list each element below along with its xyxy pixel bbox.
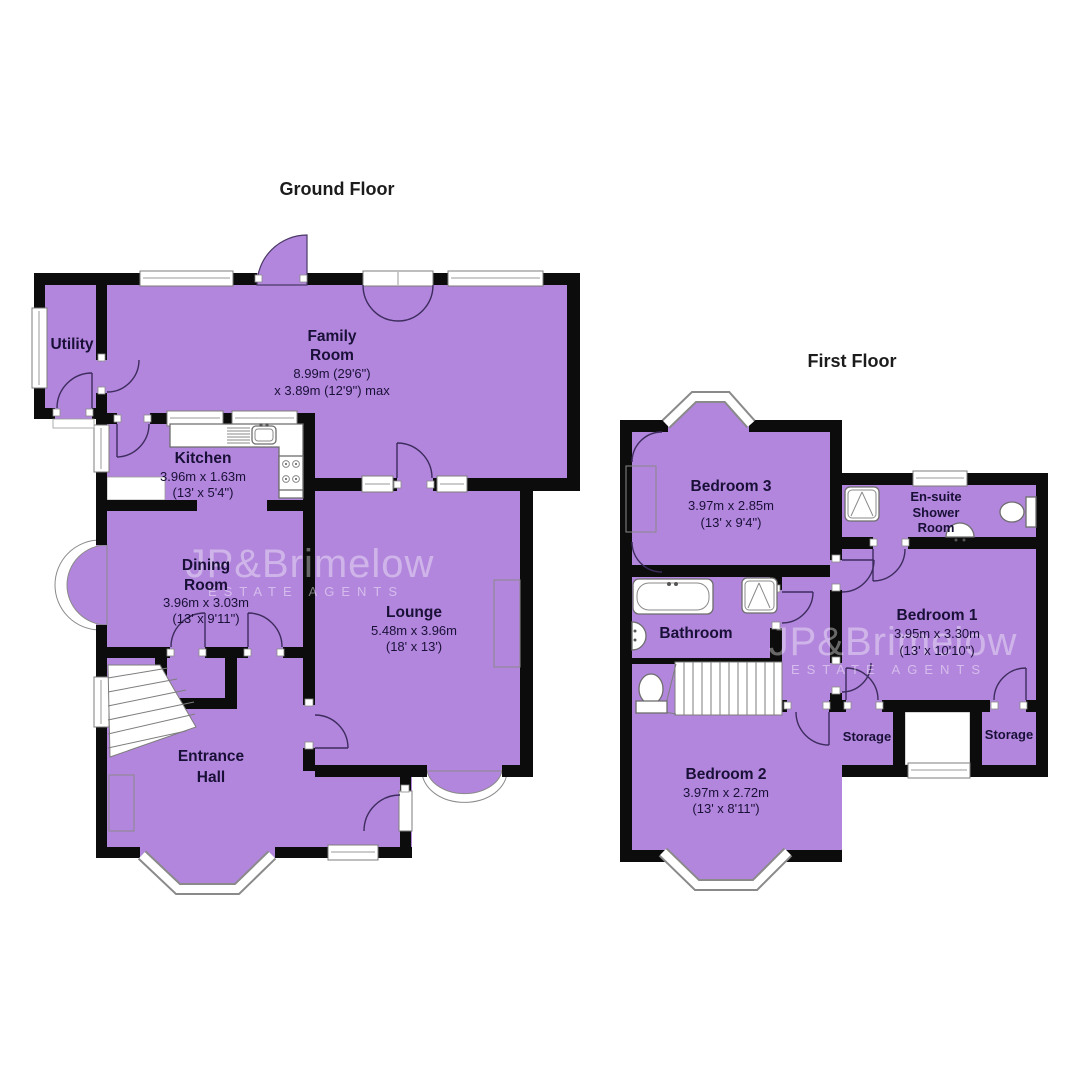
stove-icon [279,456,303,490]
shower-icon [845,487,879,521]
staircase-first [664,662,782,715]
lounge-dims: (18' x 13') [386,639,442,654]
storage-left-label: Storage [843,729,891,744]
utility-label: Utility [50,336,93,353]
ensuite-label: Room [918,520,955,535]
bedroom3-label: Bedroom 3 [691,478,772,495]
kitchen-dims: 3.96m x 1.63m [160,469,246,484]
family-room-dims: 8.99m (29'6") [293,366,370,381]
bedroom1-dims: (13' x 10'10") [899,643,974,658]
entrance-hall-label: Hall [197,769,225,786]
ensuite-label: En-suite [910,489,961,504]
entrance-hall-label: Entrance [178,748,245,765]
watermark-brand: JP&Brimelow [769,620,1018,664]
bedroom1-dims: 3.95m x 3.30m [894,626,980,641]
window [908,763,970,778]
first-floor-title: First Floor [808,351,897,371]
window [448,271,543,286]
family-room-label: Family [307,328,356,345]
shower-icon [742,578,777,613]
kitchen-sink-icon [252,423,276,444]
bedroom3-dims: 3.97m x 2.85m [688,498,774,513]
bedroom1-label: Bedroom 1 [897,607,978,624]
dining-room-label: Dining [182,557,230,574]
floorplan-page: JP&Brimelow ESTATE AGENTS JP&Brimelow ES… [0,0,1080,1080]
storage-recess [905,712,970,765]
dining-room-dims: 3.96m x 3.03m [163,595,249,610]
bedroom2-dims: (13' x 8'11") [692,801,759,816]
bedroom2-dims: 3.97m x 2.72m [683,785,769,800]
watermark-first: JP&Brimelow ESTATE AGENTS [769,620,1018,677]
window [94,425,109,472]
door-swing-out [257,235,307,285]
watermark-tagline: ESTATE AGENTS [791,662,987,677]
bedroom2-label: Bedroom 2 [686,766,767,783]
window [32,308,47,388]
lounge-bow-window-area [427,771,502,794]
storage-right-label: Storage [985,727,1033,742]
window [437,476,467,492]
family-room-label: Room [310,347,354,364]
floorplan-svg: JP&Brimelow ESTATE AGENTS JP&Brimelow ES… [0,0,1080,1080]
bedroom3-dims: (13' x 9'4") [701,515,762,530]
window [94,677,109,727]
kitchen-label: Kitchen [175,450,232,467]
dining-room-label: Room [184,577,228,594]
window [328,845,378,860]
dining-room-dims: (13' x 9'11") [172,611,239,626]
ground-floor-title: Ground Floor [280,179,395,199]
window [913,471,967,486]
bathroom-label: Bathroom [659,625,732,642]
ensuite-label: Shower [913,505,960,520]
kitchen-recess [107,477,165,500]
lounge-label: Lounge [386,604,442,621]
bathtub-icon [633,579,713,614]
window [362,476,393,492]
kitchen-dims: (13' x 5'4") [173,485,234,500]
lounge-dims: 5.48m x 3.96m [371,623,457,638]
family-room-dims: x 3.89m (12'9") max [274,383,390,398]
window [140,271,233,286]
dining-bow-window-area [67,545,107,625]
